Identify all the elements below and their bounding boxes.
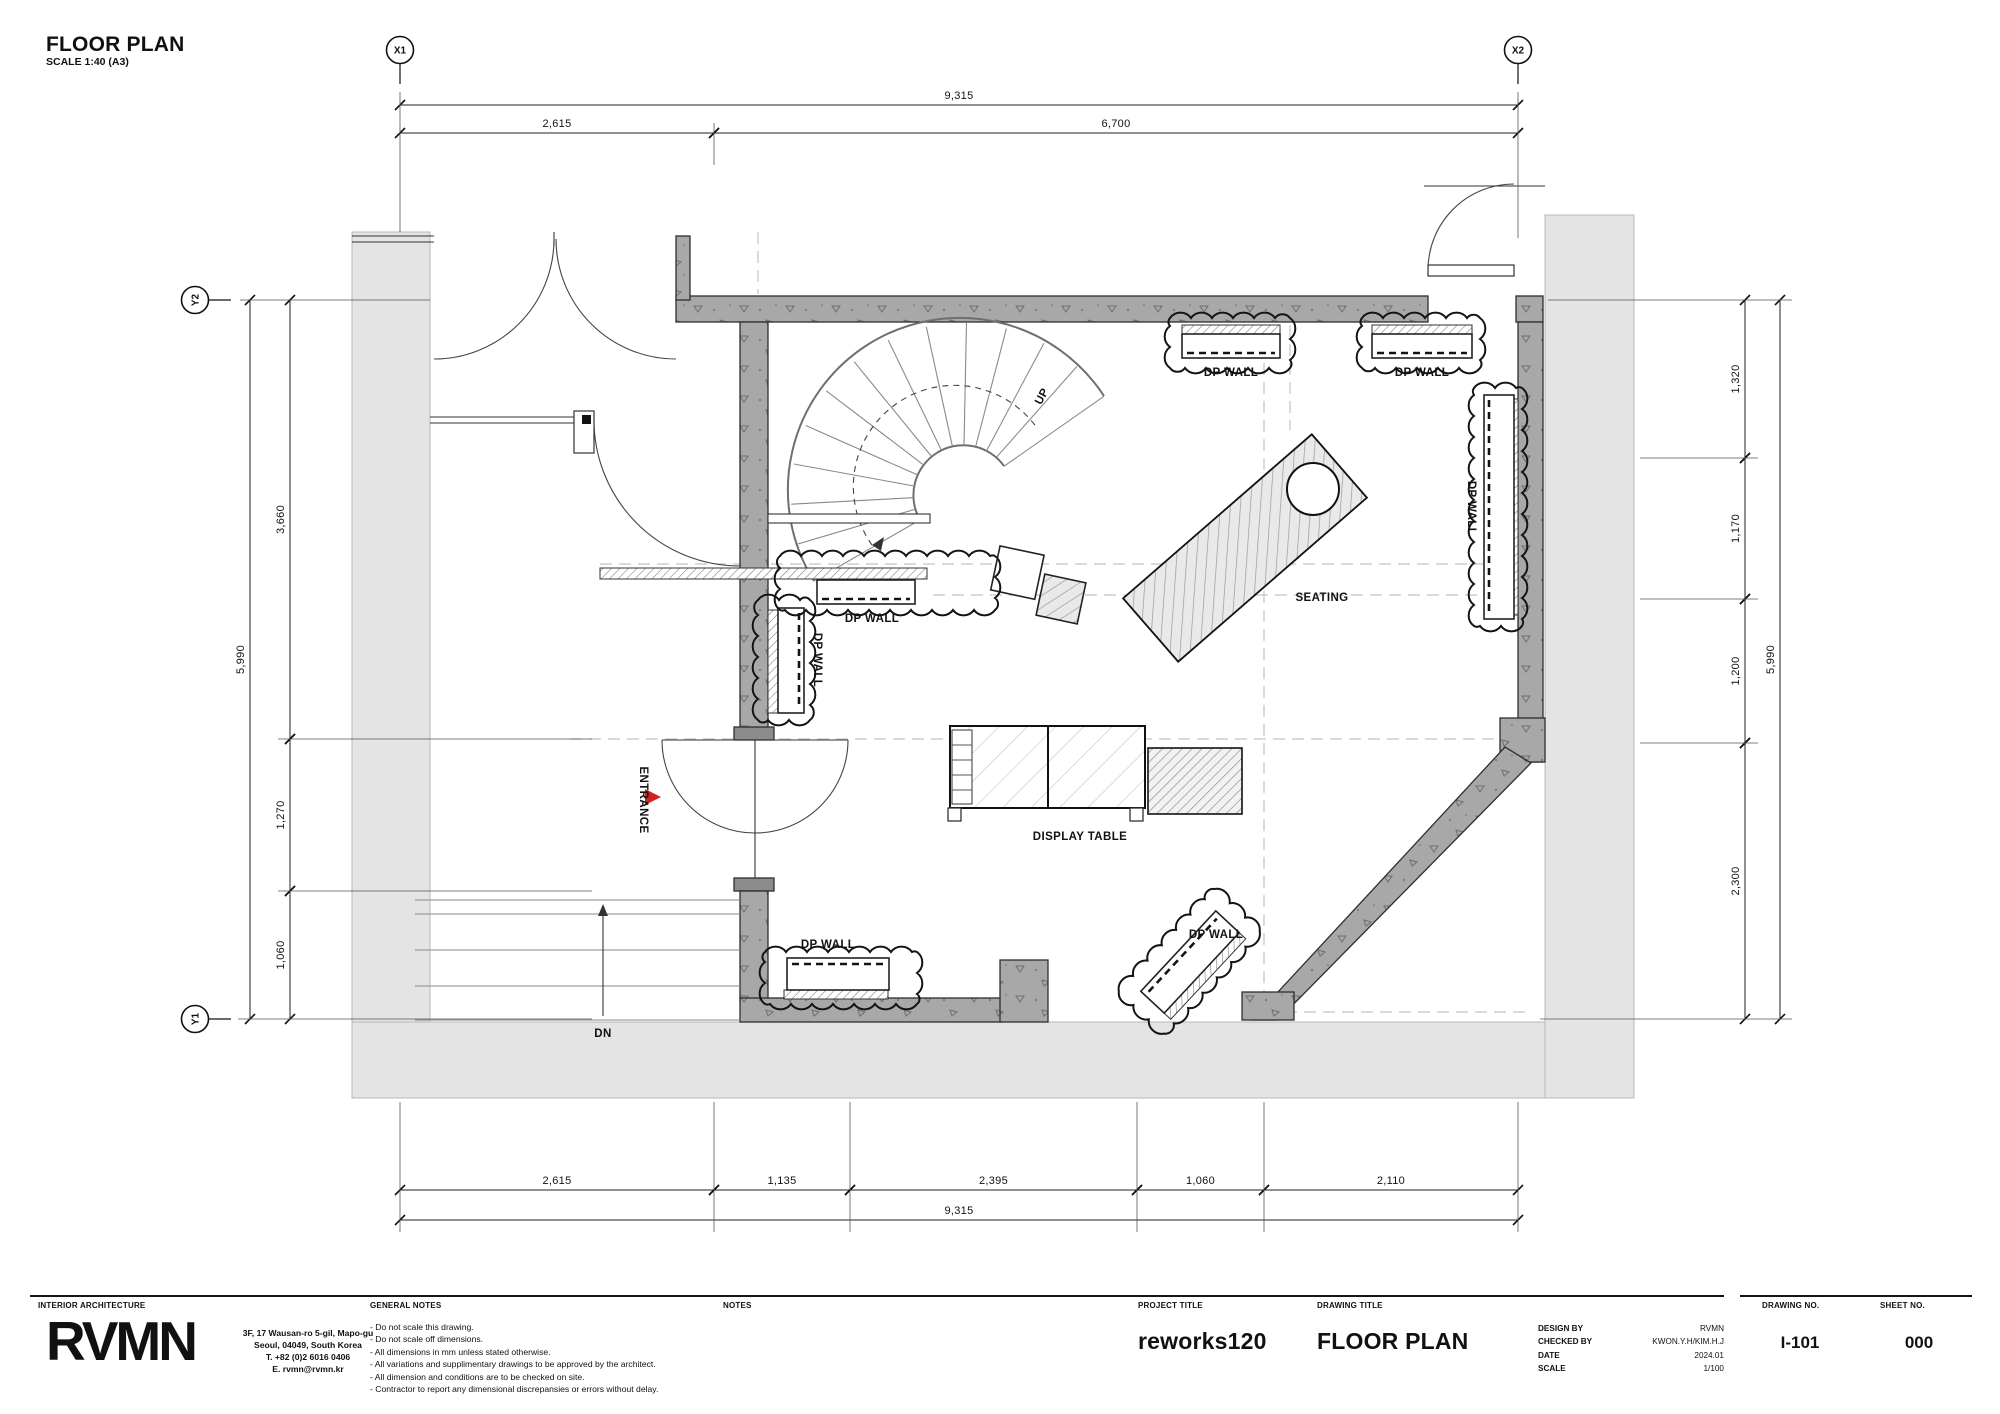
meta-value: 2024.01 — [1694, 1349, 1724, 1362]
general-note: - All dimensions in mm unless stated oth… — [370, 1346, 658, 1358]
label-seating: SEATING — [1295, 592, 1348, 604]
meta-label: SCALE — [1538, 1362, 1566, 1375]
dimension-label: 2,395 — [979, 1175, 1008, 1187]
corridor-door-swing — [594, 420, 740, 566]
sheet-no-header: SHEET NO. — [1880, 1301, 1925, 1310]
revision-clouds — [753, 313, 1528, 1041]
dimension-label: 5,990 — [1765, 645, 1777, 674]
dimension-label: 1,135 — [767, 1175, 796, 1187]
sheet-no: 000 — [1876, 1333, 1962, 1353]
general-notes-list: - Do not scale this drawing.- Do not sca… — [370, 1321, 658, 1396]
dimension-label: 2,615 — [542, 118, 571, 130]
title-block-rule-right — [1740, 1295, 1972, 1297]
dimension-label: 2,110 — [1377, 1175, 1405, 1187]
meta-label: CHECKED BY — [1538, 1335, 1592, 1348]
label-dp-wall-top-2: DP WALL — [1395, 367, 1449, 379]
sheet-title: FLOOR PLAN — [46, 34, 185, 56]
sheet-scale-note: SCALE 1:40 (A3) — [46, 56, 185, 68]
meta-row: SCALE1/100 — [1538, 1362, 1724, 1375]
label-display-table: DISPLAY TABLE — [1033, 831, 1127, 843]
label-dp-wall-mid-v: DP WALL — [811, 633, 823, 687]
label-entrance: ENTRANCE — [637, 766, 649, 833]
general-note: - All dimension and conditions are to be… — [370, 1371, 658, 1383]
spiral-stair — [768, 318, 1104, 581]
external-stair — [415, 900, 740, 1020]
general-note: - Contractor to report any dimensional d… — [370, 1383, 658, 1395]
general-notes-header: GENERAL NOTES — [370, 1301, 441, 1310]
furniture — [948, 434, 1367, 821]
dimension-label: 1,060 — [1186, 1175, 1215, 1187]
side-tables — [991, 546, 1086, 624]
dimension-label: 2,300 — [1730, 866, 1742, 895]
doors-and-facade — [352, 184, 1545, 878]
label-dp-wall-bottom-right: DP WALL — [1189, 929, 1243, 941]
general-note: - Do not scale off dimensions. — [370, 1333, 658, 1345]
dimension-label: 1,060 — [275, 940, 287, 969]
dn-arrow — [598, 904, 608, 916]
lobby-door-swing-left — [434, 239, 554, 359]
label-dp-wall-right: DP WALL — [1465, 481, 1477, 535]
dimension-label: 1,270 — [275, 800, 287, 829]
meta-label: DESIGN BY — [1538, 1322, 1583, 1335]
general-note: - All variations and supplimentary drawi… — [370, 1358, 658, 1370]
drawing-sheet: 9,3152,6156,7002,6151,1352,3951,0602,110… — [0, 0, 2000, 1414]
dimension-label: 3,660 — [275, 505, 287, 534]
drawing-no: I-101 — [1752, 1333, 1848, 1353]
title-block-rule-left — [30, 1295, 1724, 1297]
drawing-title-header: DRAWING TITLE — [1317, 1301, 1383, 1310]
meta-label: DATE — [1538, 1349, 1560, 1362]
label-up: UP — [1033, 386, 1051, 406]
label-dp-wall-bottom-left: DP WALL — [801, 939, 855, 951]
dimension-label: 6,700 — [1101, 118, 1130, 130]
meta-row: DESIGN BYRVMN — [1538, 1322, 1724, 1335]
top-right-door-swing — [1428, 184, 1514, 270]
meta-row: DATE2024.01 — [1538, 1349, 1724, 1362]
project-title: reworks120 — [1138, 1328, 1267, 1355]
label-dn: DN — [594, 1028, 611, 1040]
rvmn-logo: RVMN — [46, 1314, 195, 1369]
grid-label: X1 — [394, 46, 407, 57]
discipline-header: INTERIOR ARCHITECTURE — [38, 1301, 145, 1310]
meta-value: 1/100 — [1704, 1362, 1725, 1375]
meta-table: DESIGN BYRVMN CHECKED BYKWON.Y.H/KIM.H.J… — [1538, 1322, 1724, 1375]
label-dp-wall-top-1: DP WALL — [1204, 367, 1258, 379]
dimension-label: 5,990 — [235, 645, 247, 674]
meta-row: CHECKED BYKWON.Y.H/KIM.H.J — [1538, 1335, 1724, 1348]
drawing-title: FLOOR PLAN — [1317, 1328, 1469, 1355]
label-dp-wall-mid-h: DP WALL — [845, 613, 899, 625]
display-table-object — [948, 726, 1242, 821]
dimension-label: 9,315 — [944, 1205, 973, 1217]
project-title-header: PROJECT TITLE — [1138, 1301, 1203, 1310]
grid-label: Y2 — [191, 293, 202, 306]
floor-plan-drawing: 9,3152,6156,7002,6151,1352,3951,0602,110… — [0, 0, 2000, 1414]
drawing-no-header: DRAWING NO. — [1762, 1301, 1819, 1310]
sheet-header: FLOOR PLAN SCALE 1:40 (A3) — [46, 34, 185, 68]
dimension-label: 9,315 — [944, 90, 973, 102]
grid-label: X2 — [1512, 46, 1525, 57]
lobby-door-swing-right — [556, 239, 676, 359]
meta-value: RVMN — [1700, 1322, 1724, 1335]
seating-bench — [1123, 434, 1367, 661]
meta-value: KWON.Y.H/KIM.H.J — [1652, 1335, 1724, 1348]
dimension-label: 1,320 — [1730, 364, 1742, 393]
dimension-label: 2,615 — [542, 1175, 571, 1187]
dimension-label: 1,200 — [1730, 656, 1742, 685]
general-note: - Do not scale this drawing. — [370, 1321, 658, 1333]
notes-header: NOTES — [723, 1301, 752, 1310]
dimension-label: 1,170 — [1730, 514, 1742, 543]
grid-label: Y1 — [191, 1012, 202, 1025]
